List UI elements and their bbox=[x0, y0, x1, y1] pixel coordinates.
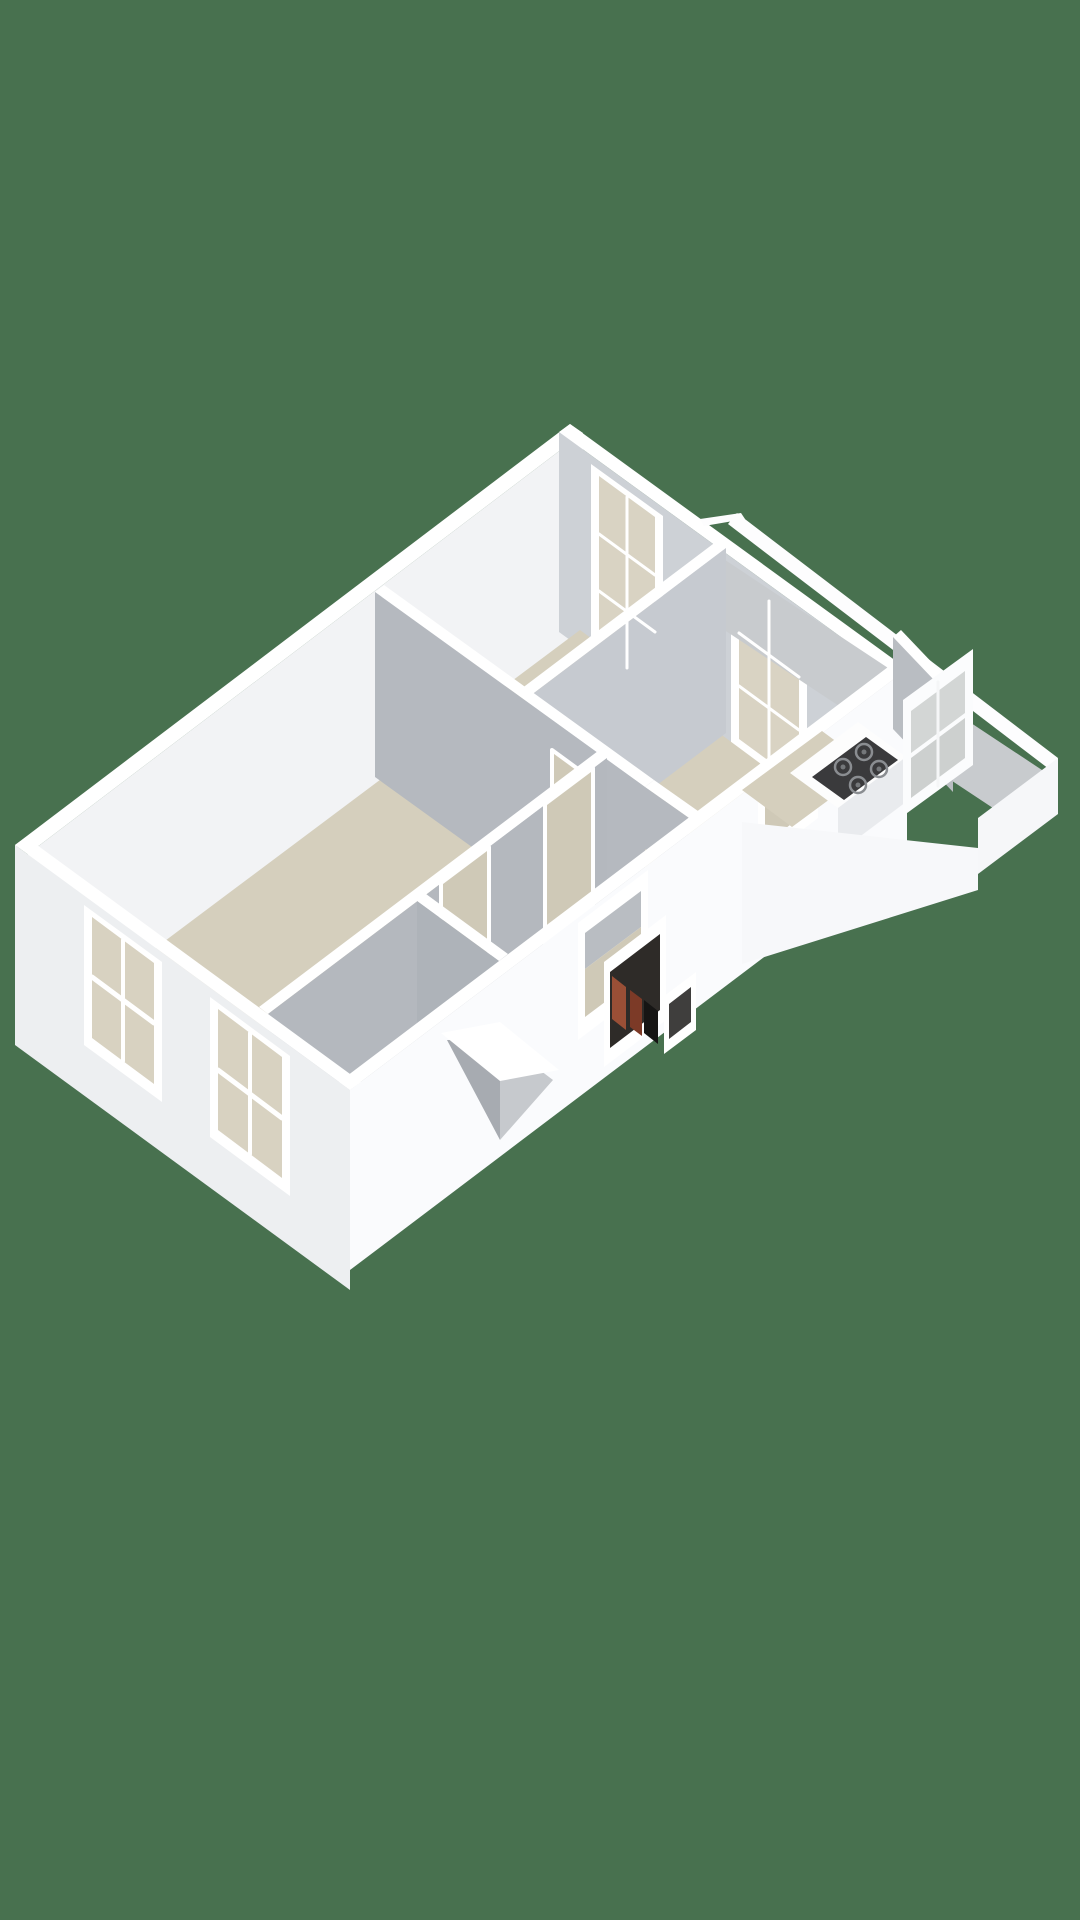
floor-plan-3d-render bbox=[0, 0, 1080, 1920]
burner-center-3 bbox=[856, 783, 861, 788]
burner-center-4 bbox=[877, 767, 882, 772]
burner-center-1 bbox=[841, 765, 846, 770]
burner-center-2 bbox=[862, 750, 867, 755]
page bbox=[0, 0, 1080, 1920]
